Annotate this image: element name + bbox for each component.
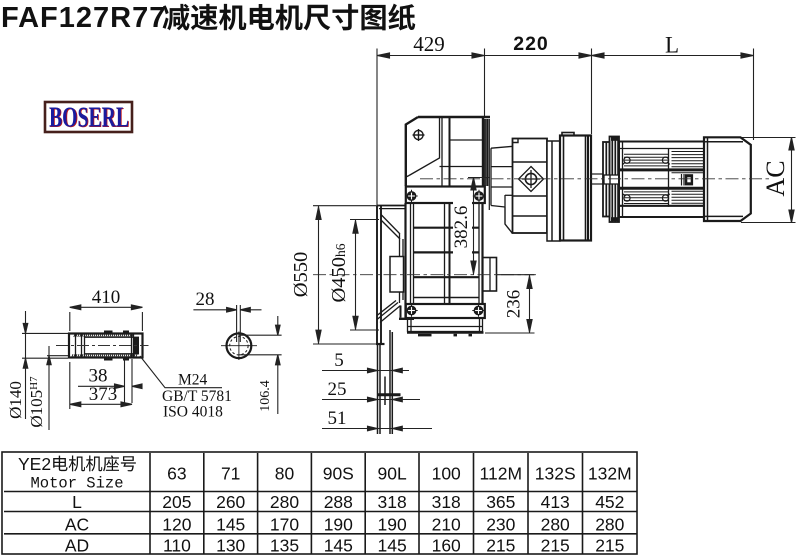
svg-text:63: 63: [167, 464, 186, 484]
svg-text:280: 280: [541, 515, 570, 535]
svg-text:5: 5: [334, 350, 344, 371]
svg-text:106.4: 106.4: [258, 380, 273, 412]
svg-text:Motor Size: Motor Size: [30, 475, 123, 493]
svg-text:100: 100: [432, 464, 461, 484]
svg-text:135: 135: [270, 536, 299, 556]
svg-text:190: 190: [377, 515, 406, 535]
svg-text:318: 318: [432, 492, 461, 512]
svg-text:AC: AC: [761, 160, 790, 196]
svg-text:365: 365: [486, 492, 515, 512]
svg-text:Ø550: Ø550: [290, 252, 312, 298]
svg-text:GB/T 5781: GB/T 5781: [162, 388, 232, 405]
svg-text:71: 71: [221, 464, 240, 484]
svg-text:288: 288: [324, 492, 353, 512]
svg-text:120: 120: [162, 515, 191, 535]
svg-text:190: 190: [324, 515, 353, 535]
svg-text:236: 236: [504, 290, 525, 319]
svg-text:YE2: YE2: [18, 454, 51, 474]
svg-text:BOSERL: BOSERL: [49, 103, 129, 134]
svg-text:215: 215: [486, 536, 515, 556]
svg-text:ISO 4018: ISO 4018: [163, 404, 223, 421]
svg-text:AC: AC: [65, 515, 89, 535]
svg-text:AD: AD: [65, 536, 89, 556]
svg-text:220: 220: [513, 33, 549, 55]
svg-text:318: 318: [377, 492, 406, 512]
svg-text:145: 145: [324, 536, 353, 556]
svg-text:145: 145: [377, 536, 406, 556]
svg-text:373: 373: [89, 384, 118, 405]
svg-text:382.6: 382.6: [451, 206, 472, 249]
svg-text:260: 260: [216, 492, 245, 512]
svg-text:429: 429: [413, 32, 445, 56]
svg-text:FAF127R77: FAF127R77: [1, 2, 166, 34]
svg-text:90S: 90S: [323, 464, 354, 484]
svg-text:145: 145: [216, 515, 245, 535]
svg-text:230: 230: [486, 515, 515, 535]
svg-text:280: 280: [595, 515, 624, 535]
svg-text:Ø140: Ø140: [6, 381, 25, 419]
svg-text:L: L: [72, 492, 82, 512]
svg-text:132M: 132M: [588, 464, 632, 484]
svg-text:452: 452: [595, 492, 624, 512]
svg-text:112M: 112M: [480, 464, 522, 484]
svg-text:130: 130: [216, 536, 245, 556]
svg-text:28: 28: [196, 289, 215, 310]
svg-text:410: 410: [92, 287, 121, 308]
svg-text:413: 413: [541, 492, 570, 512]
svg-text:90L: 90L: [377, 464, 406, 484]
svg-text:80: 80: [275, 464, 295, 484]
svg-text:215: 215: [595, 536, 624, 556]
svg-text:280: 280: [270, 492, 299, 512]
svg-text:160: 160: [432, 536, 461, 556]
svg-text:L: L: [665, 33, 679, 58]
svg-text:132S: 132S: [535, 464, 576, 484]
svg-text:210: 210: [432, 515, 461, 535]
svg-text:110: 110: [163, 536, 191, 556]
svg-text:25: 25: [328, 379, 347, 400]
svg-text:170: 170: [270, 515, 299, 535]
svg-text:M24: M24: [178, 372, 208, 389]
svg-text:205: 205: [162, 492, 191, 512]
svg-text:51: 51: [328, 408, 347, 429]
svg-text:215: 215: [541, 536, 570, 556]
